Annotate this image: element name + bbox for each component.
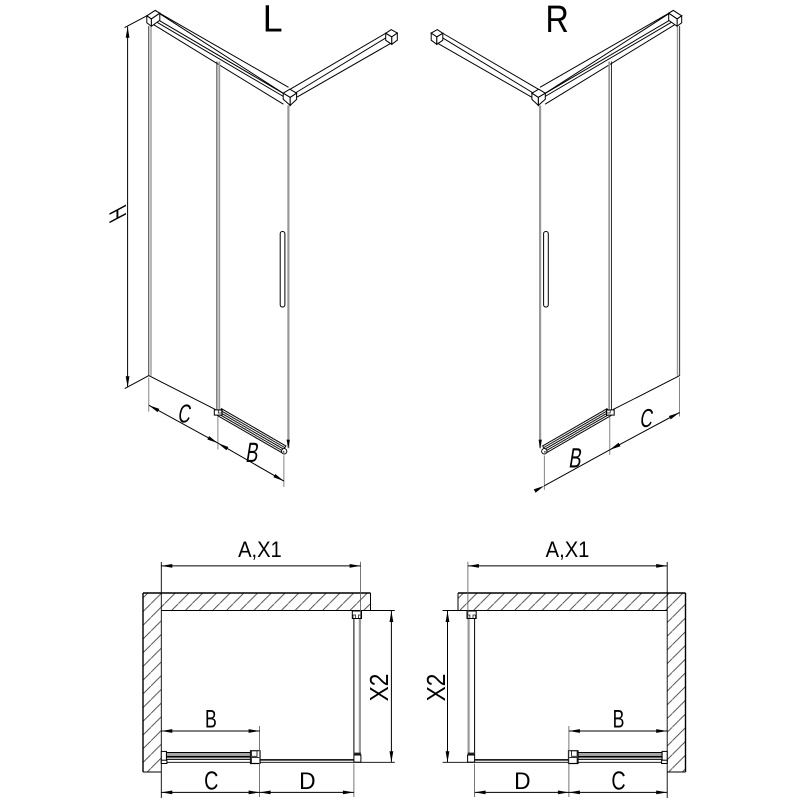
svg-text:B: B [205,706,217,734]
svg-text:X2: X2 [366,674,395,702]
svg-text:A,X1: A,X1 [546,538,590,562]
svg-text:B: B [613,706,625,734]
svg-text:A,X1: A,X1 [238,538,282,562]
svg-text:D: D [514,767,530,794]
svg-text:C: C [611,766,625,795]
svg-text:X2: X2 [423,674,452,702]
svg-text:D: D [299,767,315,794]
svg-text:L: L [263,0,283,40]
svg-text:C: C [204,766,218,795]
svg-text:R: R [546,0,569,41]
